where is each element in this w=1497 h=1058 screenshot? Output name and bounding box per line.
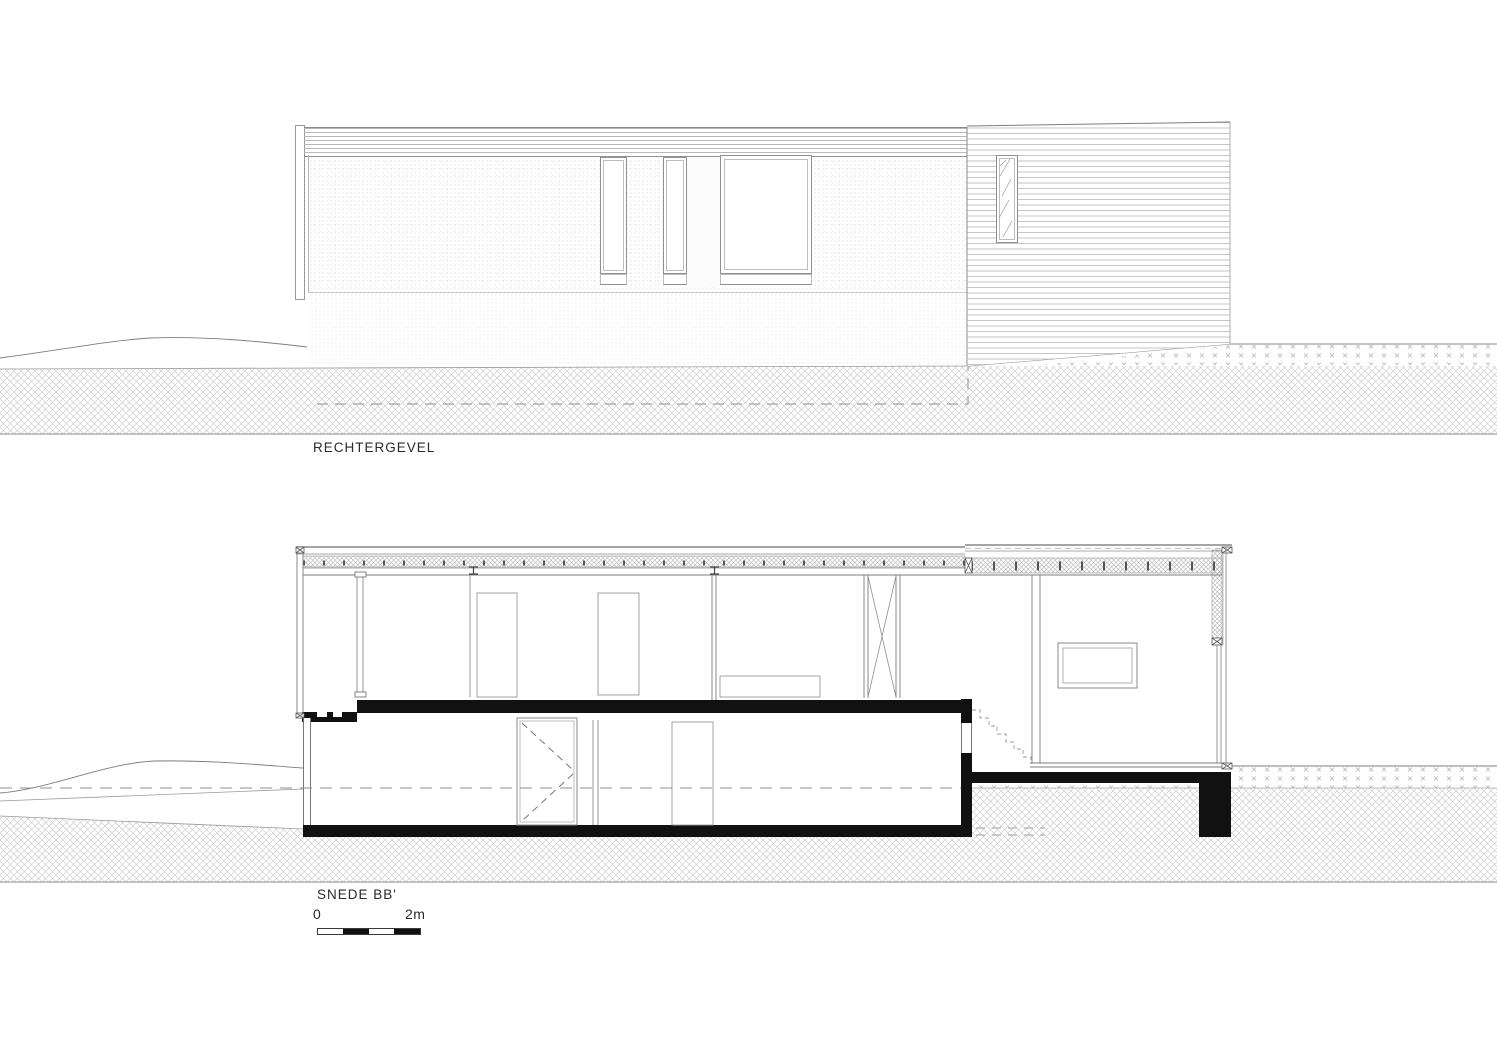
section-gravel-band-right — [1232, 767, 1497, 788]
section-ground-hatch-left — [0, 816, 303, 882]
drawing-sheet: RECHTERGEVEL SNEDE BB' 0 2m — [0, 0, 1497, 1058]
elevation-window-sill-3 — [720, 274, 812, 285]
section-right-facade — [1217, 547, 1226, 766]
section-roof-insulation-right — [971, 558, 1222, 573]
section-right-room-window — [1058, 643, 1137, 688]
scale-bar-segment — [318, 929, 343, 934]
elevation-title: RECHTERGEVEL — [313, 440, 435, 455]
section-right-floor-slab — [972, 772, 1199, 783]
section-right-foundation — [1199, 772, 1231, 837]
elevation-window-large — [720, 155, 812, 274]
section-gravel-row-under-slab — [972, 783, 1199, 788]
elevation-ground-hatch — [0, 366, 1497, 434]
section-stair-wall-lower — [961, 753, 972, 825]
section-right-floor-lines — [1030, 763, 1222, 767]
section-terrain-lower-line — [0, 789, 303, 801]
section-hatch-top-left-line — [0, 816, 303, 829]
section-lower-left-wall — [303, 718, 311, 825]
section-entry-step-notch-2 — [333, 712, 342, 717]
section-entry-step-notch-1 — [317, 712, 327, 717]
section-cut-end-blocks — [296, 547, 1232, 769]
section-left-glazing — [355, 572, 366, 697]
section-upper-doors — [477, 593, 820, 697]
section-stairs — [972, 710, 1031, 764]
section-roof-lines — [296, 545, 1232, 575]
section-floor-slab — [357, 700, 963, 713]
elevation-roof-fascia — [304, 127, 967, 157]
section-left-wall — [297, 553, 303, 713]
section-lower-wall — [593, 720, 598, 825]
elevation-facade-base — [309, 292, 967, 366]
section-ground-hatch-right — [972, 788, 1497, 882]
elevation-window-narrow-1 — [600, 157, 627, 274]
section-lower-door-2 — [672, 722, 713, 825]
scale-bar-zero-label: 0 — [313, 906, 321, 922]
elevation-terrain-mound-line — [0, 338, 307, 358]
elevation-window-narrow-2 — [663, 157, 687, 274]
section-title: SNEDE BB' — [317, 887, 397, 902]
section-roof-insulation-left — [303, 556, 965, 567]
section-partitions — [470, 575, 1040, 763]
section-drain-dashes — [976, 828, 1045, 835]
scale-bar — [317, 928, 421, 935]
section-bottom-slab — [303, 825, 972, 837]
scale-bar-segment — [369, 929, 394, 934]
scale-bar-end-label: 2m — [405, 906, 425, 922]
section-stair-wall-upper — [961, 699, 972, 723]
elevation-foundation-dashed-outline — [317, 367, 968, 404]
elevation-ground-line — [0, 366, 968, 369]
scale-bar-segment — [343, 929, 369, 934]
elevation-louver-window — [996, 155, 1018, 243]
section-terrain-mound-line — [0, 761, 303, 793]
section-ground-hatch-middle — [303, 837, 972, 882]
elevation-window-sill-1 — [600, 274, 627, 285]
section-stair-wall-glazing — [961, 723, 972, 753]
section-right-wall-insulation — [1212, 550, 1222, 640]
section-lower-door — [517, 718, 577, 825]
section-steel-beam-symbols — [469, 567, 719, 574]
elevation-facade-upper — [308, 155, 968, 293]
scale-bar-segment — [394, 929, 420, 934]
elevation-window-sill-2 — [663, 274, 687, 285]
elevation-pier-light — [687, 157, 720, 287]
